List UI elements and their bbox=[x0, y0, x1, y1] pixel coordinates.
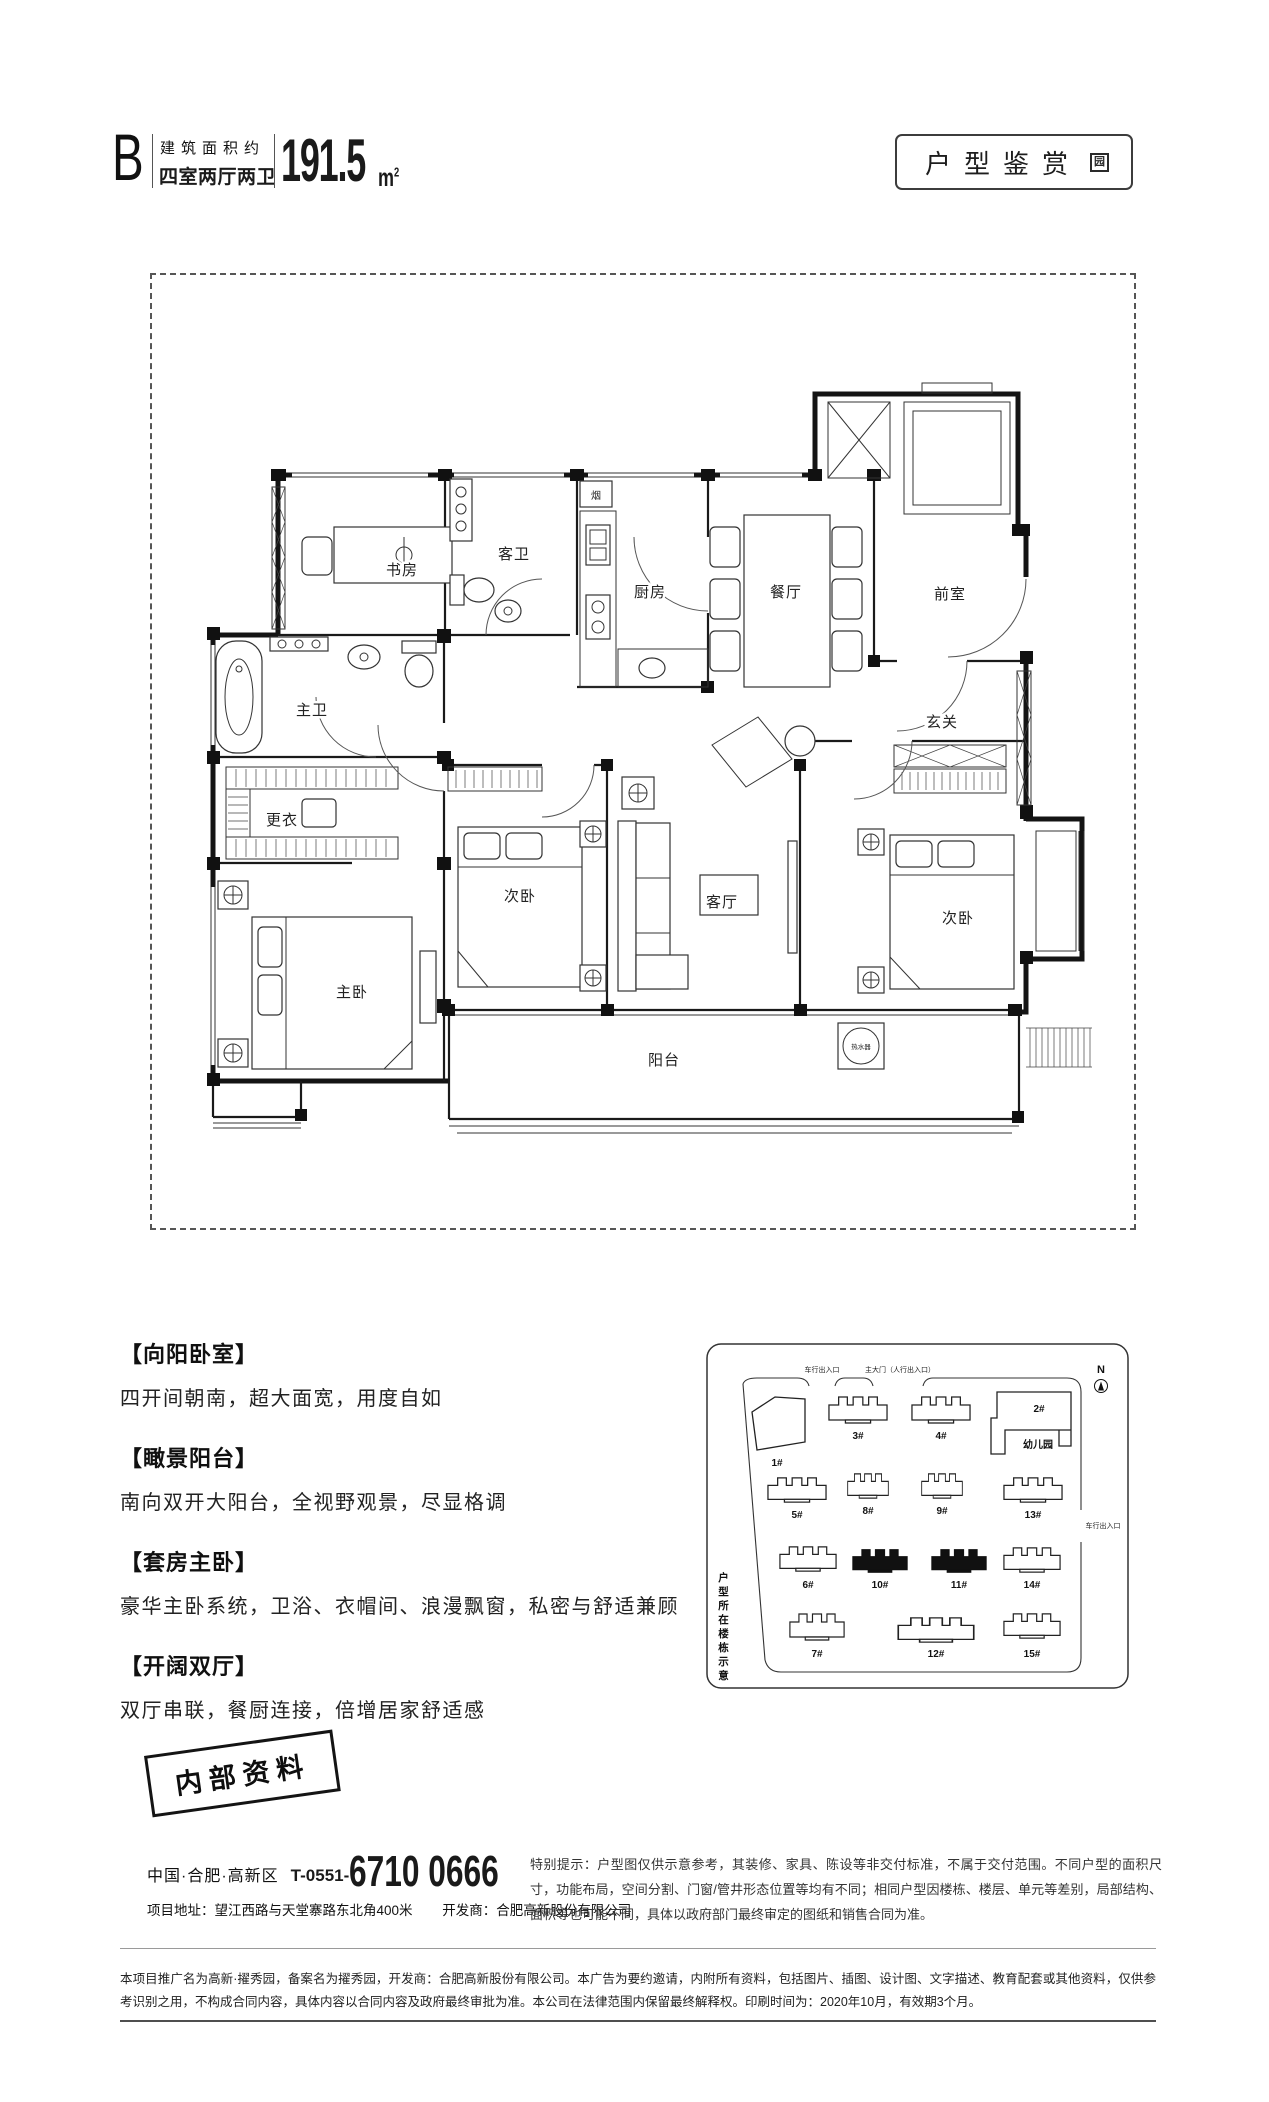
svg-text:N: N bbox=[1097, 1364, 1105, 1376]
feature-desc: 南向双开大阳台，全视野观景，尽显格调 bbox=[120, 1486, 695, 1515]
badge-label: 户型鉴赏 bbox=[919, 144, 1081, 181]
divider-rule-bottom bbox=[120, 2020, 1156, 2022]
feature-item: 【向阳卧室】 四开间朝南，超大面宽，用度自如 bbox=[120, 1337, 695, 1411]
siteplan-drawing: 车行出入口 主大门（人行出入口） 车行出入口 N bbox=[705, 1342, 1130, 1690]
svg-text:13#: 13# bbox=[1025, 1510, 1042, 1521]
feature-item: 【套房主卧】 豪华主卧系统，卫浴、衣帽间、浪漫飘窗，私密与舒适兼顾 bbox=[120, 1545, 695, 1619]
room-label-living: 客厅 bbox=[706, 894, 738, 911]
kindergarten-label: 幼儿园 bbox=[1023, 1438, 1053, 1451]
legal-disclaimer: 本项目推广名为高新·擢秀园，备案名为擢秀园，开发商：合肥高新股份有限公司。本广告… bbox=[120, 1968, 1156, 2014]
unit-letter: B bbox=[112, 124, 144, 190]
entrance-main-label: 主大门（人行出入口） bbox=[865, 1365, 935, 1374]
room-label-balcony: 阳台 bbox=[648, 1052, 680, 1069]
project-address: 项目地址：望江西路与天堂寨路东北角400米 bbox=[147, 1903, 413, 1918]
floorplan-drawing: 烟 bbox=[152, 275, 1134, 1228]
room-label-master-bedroom: 主卧 bbox=[336, 984, 368, 1001]
header-divider bbox=[152, 134, 153, 188]
svg-text:11#: 11# bbox=[951, 1580, 968, 1591]
entrance-car-right-label: 车行出入口 bbox=[1086, 1521, 1121, 1530]
area-unit: m2 bbox=[378, 164, 399, 193]
svg-text:9#: 9# bbox=[936, 1506, 948, 1517]
feature-title: 【向阳卧室】 bbox=[120, 1337, 695, 1369]
feature-desc: 双厅串联，餐厨连接，倍增居家舒适感 bbox=[120, 1694, 695, 1723]
entrance-car-top-label: 车行出入口 bbox=[805, 1365, 840, 1374]
svg-text:6#: 6# bbox=[802, 1580, 814, 1591]
feature-title: 【瞰景阳台】 bbox=[120, 1441, 695, 1473]
divider-rule-top bbox=[120, 1948, 1156, 1949]
svg-text:2#: 2# bbox=[1033, 1404, 1045, 1415]
area-note: 建筑面积约 bbox=[160, 137, 265, 158]
region-label: 中国·合肥·高新区 bbox=[147, 1862, 279, 1890]
feature-list: 【向阳卧室】 四开间朝南，超大面宽，用度自如 【瞰景阳台】 南向双开大阳台，全视… bbox=[120, 1337, 695, 1753]
svg-text:1#: 1# bbox=[771, 1458, 783, 1469]
layout-type: 四室两厅两卫 bbox=[159, 162, 276, 189]
svg-text:4#: 4# bbox=[935, 1431, 947, 1442]
flue-label: 烟 bbox=[591, 489, 601, 502]
tel-number: 6710 0666 bbox=[349, 1854, 499, 1890]
svg-text:12#: 12# bbox=[928, 1649, 945, 1660]
header-divider bbox=[274, 134, 275, 188]
room-label-kitchen: 厨房 bbox=[634, 584, 666, 601]
feature-desc: 豪华主卧系统，卫浴、衣帽间、浪漫飘窗，私密与舒适兼顾 bbox=[120, 1590, 695, 1619]
floorplan-panel: 烟 bbox=[150, 273, 1136, 1230]
siteplan-panel: 车行出入口 主大门（人行出入口） 车行出入口 N bbox=[705, 1342, 1130, 1690]
siteplan-side-label: 户型所在楼栋示意 bbox=[716, 1572, 731, 1684]
room-label-bedroom-right: 次卧 bbox=[942, 910, 974, 927]
furniture: 烟 bbox=[216, 479, 1092, 1069]
room-label-guest-bath: 客卫 bbox=[498, 546, 530, 563]
feature-desc: 四开间朝南，超大面宽，用度自如 bbox=[120, 1382, 695, 1411]
area-value: 191.5 bbox=[281, 131, 365, 191]
flyer-page: B 建筑面积约 四室两厅两卫 191.5 m2 户型鉴赏 园 bbox=[0, 0, 1269, 2102]
unit-appreciation-badge: 户型鉴赏 园 bbox=[895, 134, 1133, 190]
svg-text:14#: 14# bbox=[1024, 1580, 1041, 1591]
room-label-study: 书房 bbox=[386, 562, 418, 579]
room-label-front-room: 前室 bbox=[934, 586, 966, 603]
special-notice: 特别提示：户型图仅供示意参考，其装修、家具、陈设等非交付标准，不属于交付范围。不… bbox=[530, 1852, 1162, 1927]
svg-text:5#: 5# bbox=[791, 1510, 803, 1521]
svg-text:15#: 15# bbox=[1024, 1649, 1041, 1660]
room-label-dining: 餐厅 bbox=[770, 584, 802, 601]
room-label-bedroom-mid: 次卧 bbox=[504, 888, 536, 905]
feature-item: 【开阔双厅】 双厅串联，餐厨连接，倍增居家舒适感 bbox=[120, 1649, 695, 1723]
water-heater-label: 热水器 bbox=[851, 1042, 871, 1051]
svg-text:3#: 3# bbox=[852, 1431, 864, 1442]
svg-text:8#: 8# bbox=[862, 1506, 874, 1517]
svg-text:10#: 10# bbox=[872, 1580, 889, 1591]
room-label-foyer: 玄关 bbox=[926, 714, 958, 731]
svg-text:7#: 7# bbox=[811, 1649, 823, 1660]
room-label-dressing: 更衣 bbox=[266, 812, 298, 829]
tel-prefix: T-0551- bbox=[291, 1866, 350, 1890]
room-label-master-bath: 主卫 bbox=[296, 702, 328, 719]
elevator-core bbox=[828, 383, 1010, 514]
feature-item: 【瞰景阳台】 南向双开大阳台，全视野观景，尽显格调 bbox=[120, 1441, 695, 1515]
feature-title: 【开阔双厅】 bbox=[120, 1649, 695, 1681]
seal-icon: 园 bbox=[1090, 153, 1109, 172]
feature-title: 【套房主卧】 bbox=[120, 1545, 695, 1577]
